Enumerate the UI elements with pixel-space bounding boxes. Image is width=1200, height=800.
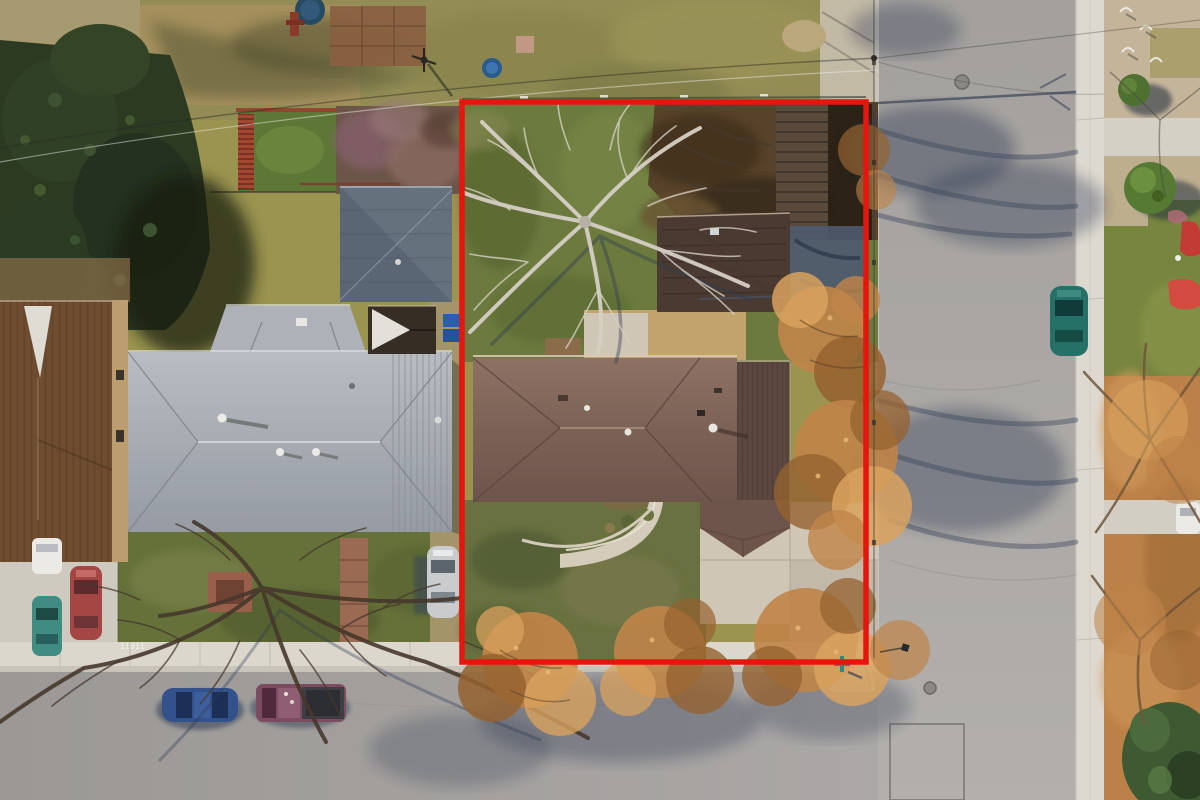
paint-shape: [370, 714, 550, 786]
teal-car-right-street: [1050, 286, 1088, 356]
left-brown-house: [0, 300, 128, 562]
paint-shape: [76, 570, 96, 577]
blue-sedan-street: [156, 688, 244, 730]
paint-shape: [284, 692, 288, 696]
paint-shape: [473, 358, 737, 502]
paint-shape: [300, 0, 320, 20]
paint-shape: [116, 430, 124, 442]
paint-shape: [832, 276, 880, 324]
paint-shape: [176, 692, 192, 718]
manhole-cover-2: [924, 682, 936, 694]
paint-shape: [262, 688, 276, 718]
paint-shape: [32, 596, 62, 656]
paint-shape: [1175, 255, 1181, 261]
paint-shape: [834, 650, 839, 655]
paint-shape: [600, 95, 608, 98]
paint-shape: [427, 546, 459, 618]
paint-shape: [514, 646, 519, 651]
side-walkway: [1104, 118, 1200, 156]
paint-shape: [558, 395, 568, 401]
paint-shape: [760, 94, 768, 97]
paint-shape: [625, 429, 632, 436]
paint-shape: [666, 646, 734, 714]
paint-shape: [34, 184, 46, 196]
paint-shape: [210, 306, 366, 352]
paint-shape: [36, 634, 58, 644]
paint-shape: [48, 93, 62, 107]
paint-shape: [872, 540, 876, 545]
paint-shape: [870, 620, 930, 680]
paint-shape: [782, 20, 826, 52]
paint-shape: [50, 24, 150, 96]
paint-shape: [312, 448, 320, 456]
paint-shape: [0, 300, 112, 562]
paint-shape: [1148, 766, 1172, 794]
paint-shape: [70, 566, 102, 640]
teal-car-left-driveway: [32, 596, 62, 656]
paint-shape: [808, 510, 868, 570]
paint-shape: [844, 438, 849, 443]
paint-shape: [74, 616, 98, 628]
paint-shape: [872, 420, 876, 425]
paint-shape: [872, 60, 876, 65]
paint-shape: [390, 352, 452, 532]
paint-shape: [32, 538, 62, 574]
paint-shape: [714, 388, 722, 393]
red-car-left-driveway: [70, 566, 102, 640]
paint-shape: [470, 530, 570, 590]
paint-shape: [431, 560, 455, 573]
aerial-photo: 11911: [0, 0, 1200, 800]
paint-shape: [1130, 708, 1170, 752]
paint-shape: [872, 260, 876, 265]
paint-shape: [796, 626, 801, 631]
paint-shape: [640, 115, 760, 185]
paint-shape: [664, 598, 716, 650]
paint-shape: [520, 96, 528, 99]
paint-shape: [546, 670, 551, 675]
paint-shape: [486, 62, 498, 74]
paint-shape: [433, 550, 453, 556]
paint-shape: [697, 410, 705, 416]
espresso-roof-shed: [368, 306, 436, 354]
paint-shape: [1121, 78, 1137, 94]
paint-shape: [450, 110, 510, 150]
paint-shape: [680, 95, 688, 98]
paint-shape: [286, 20, 304, 25]
paint-shape: [395, 259, 401, 265]
paint-shape: [330, 6, 426, 66]
paint-shape: [605, 523, 615, 533]
door-mat: [545, 338, 581, 356]
paint-shape: [1180, 221, 1200, 256]
paint-shape: [460, 130, 540, 270]
paint-shape: [435, 417, 442, 424]
paint-shape: [742, 646, 802, 706]
paint-shape: [516, 36, 534, 53]
paint-shape: [74, 580, 98, 594]
paint-shape: [276, 448, 284, 456]
paint-shape: [443, 329, 460, 342]
paint-shape: [36, 544, 58, 552]
paint-shape: [290, 700, 294, 704]
paint-shape: [1168, 279, 1200, 310]
paint-shape: [443, 314, 460, 327]
paint-shape: [650, 638, 655, 643]
lilac-shrubs: [334, 100, 469, 194]
paint-shape: [856, 170, 896, 210]
paint-shape: [1150, 28, 1200, 78]
paint-shape: [850, 4, 960, 56]
paint-shape: [584, 405, 590, 411]
white-car-left-driveway: [32, 538, 62, 574]
paint-shape: [0, 258, 130, 302]
paint-shape: [36, 608, 58, 620]
paint-shape: [709, 424, 718, 433]
paint-shape: [116, 370, 124, 380]
paint-shape: [256, 126, 324, 174]
paint-shape: [84, 144, 96, 156]
paint-shape: [1152, 190, 1164, 202]
paint-shape: [850, 390, 910, 450]
paint-shape: [1130, 167, 1156, 193]
paint-shape: [296, 318, 307, 326]
paint-shape: [1055, 300, 1083, 316]
paint-shape: [218, 414, 227, 423]
paint-shape: [1055, 330, 1083, 342]
paint-shape: [143, 223, 157, 237]
paint-shape: [600, 660, 656, 716]
paint-shape: [579, 216, 591, 228]
paint-shape: [816, 474, 821, 479]
paint-shape: [212, 692, 228, 718]
slate-roof-house: [300, 184, 452, 302]
paint-shape: [370, 100, 430, 140]
paint-shape: [1057, 290, 1081, 297]
paint-shape: [349, 383, 355, 389]
paint-shape: [278, 688, 300, 718]
paint-shape: [70, 235, 80, 245]
paint-shape: [125, 115, 135, 125]
paint-shape: [872, 160, 876, 165]
aerial-photo-canvas: 11911: [0, 0, 1200, 800]
curb-number: 11911: [120, 642, 145, 651]
paint-shape: [772, 272, 828, 328]
silver-car-driveway: [414, 546, 459, 618]
paint-shape: [828, 316, 833, 321]
